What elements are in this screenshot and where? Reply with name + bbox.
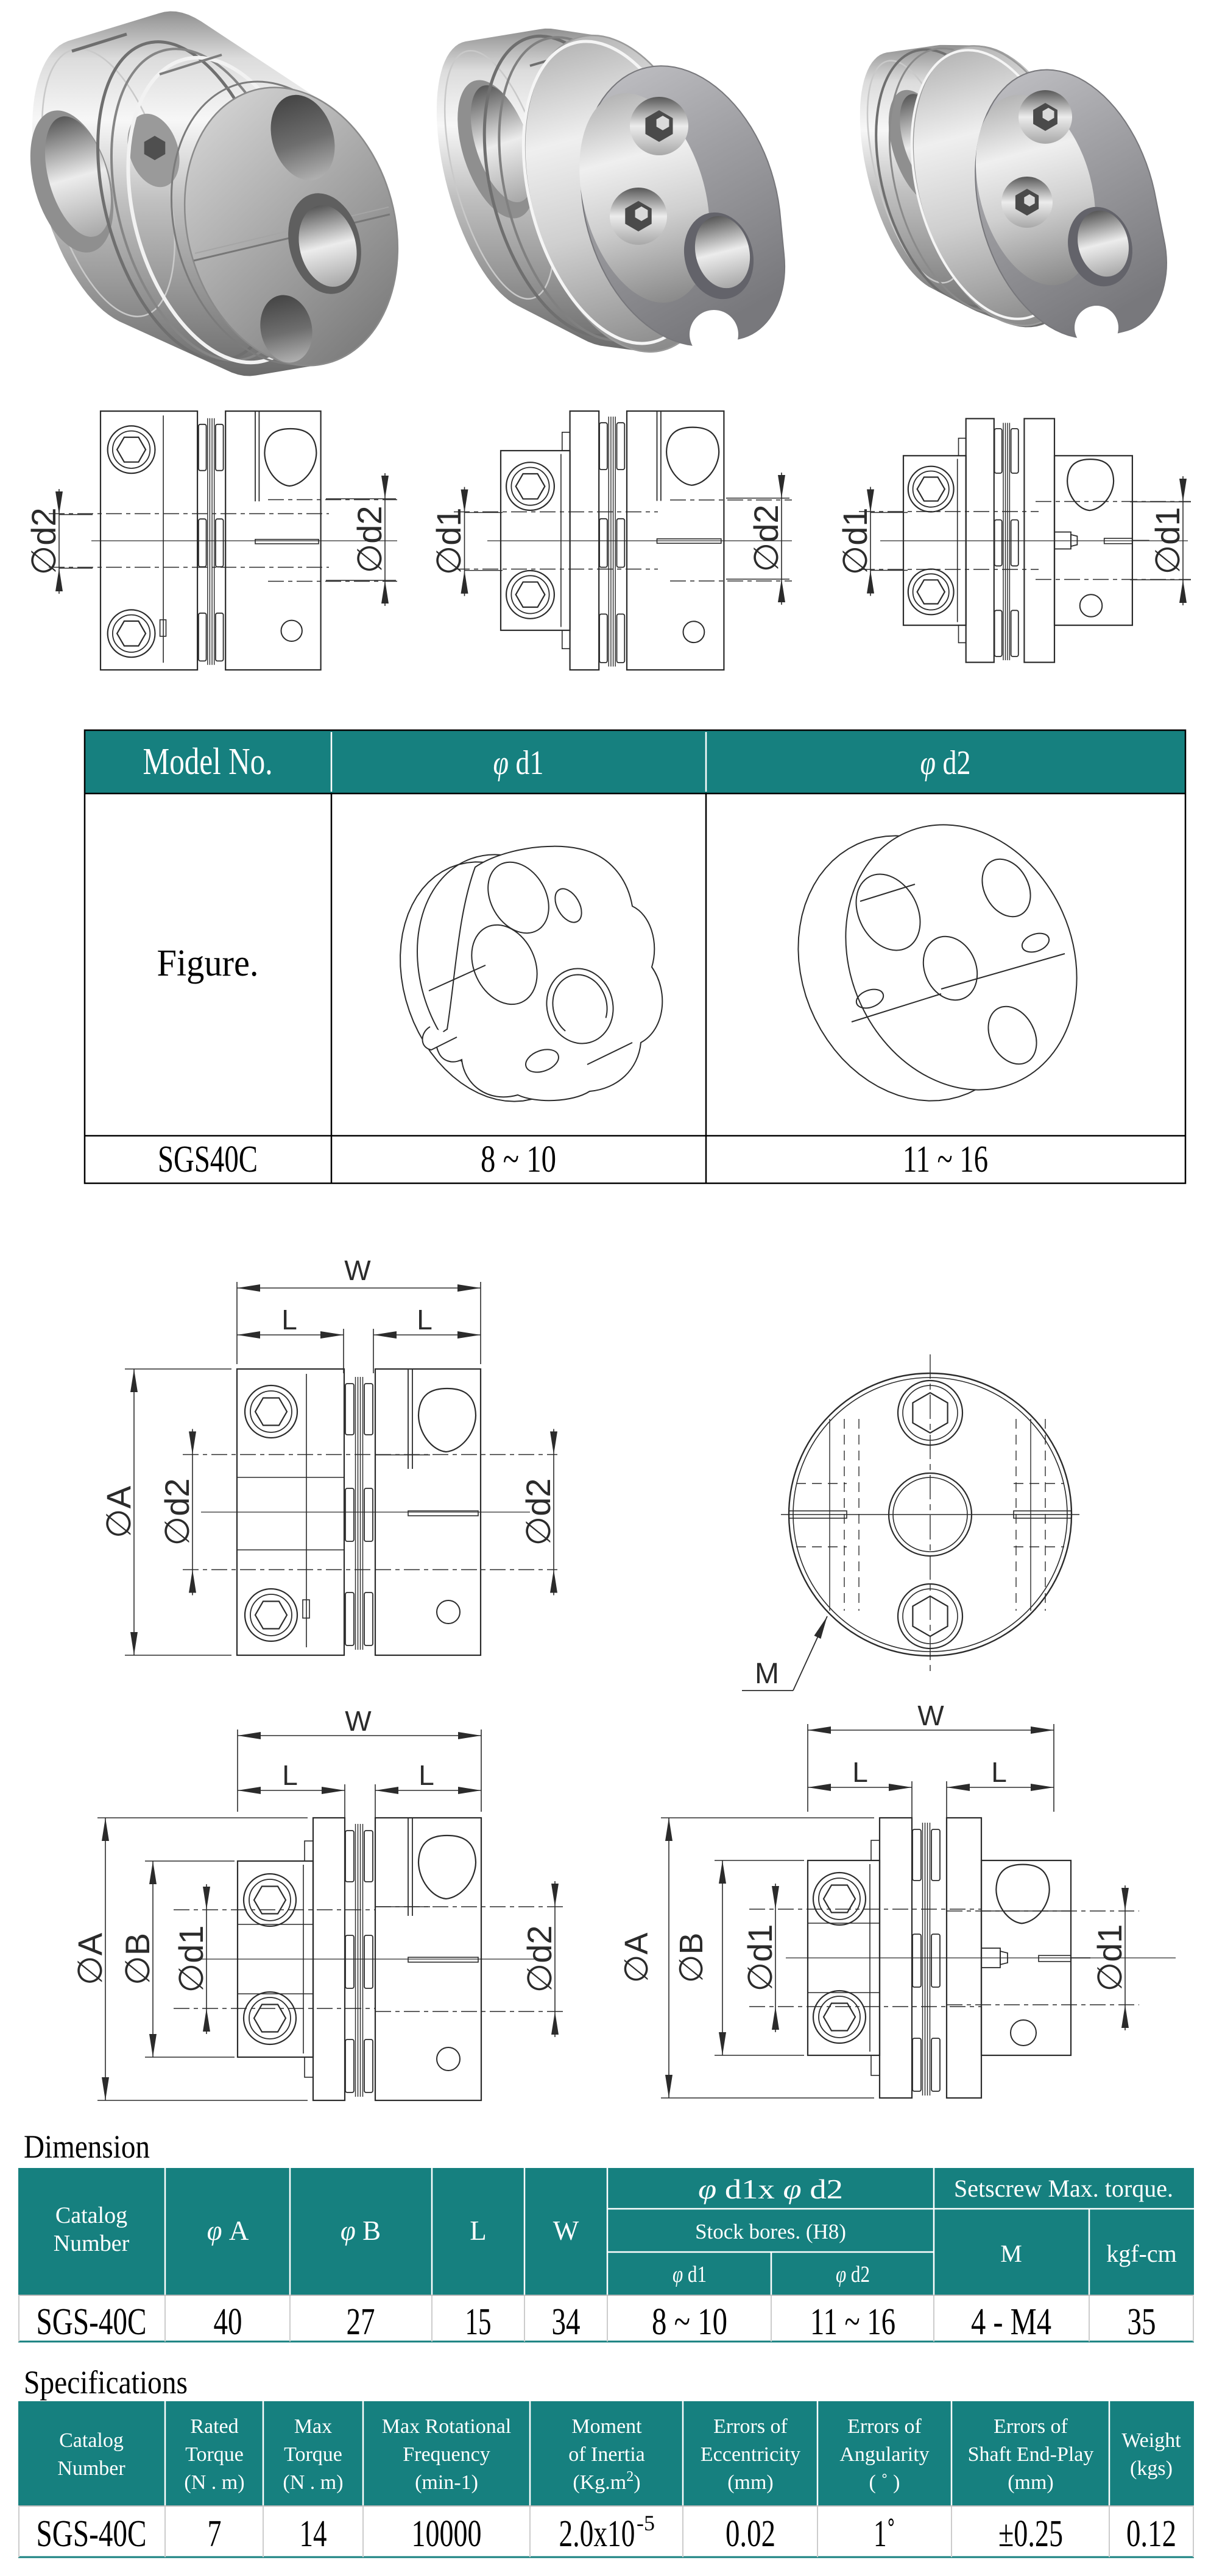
svg-text:∅B: ∅B [118,1933,157,1985]
svg-text:L: L [418,1759,434,1791]
svg-text:( ˚ ): ( ˚ ) [869,2471,900,2494]
svg-text:Weight: Weight [1121,2429,1181,2452]
svg-text:φ A: φ A [207,2215,249,2246]
svg-text:∅d1: ∅d1 [429,507,468,575]
svg-text:Stock bores. (H8): Stock bores. (H8) [695,2220,846,2243]
svg-text:10000: 10000 [412,2513,482,2555]
svg-text:W: W [917,1700,944,1731]
svg-text:Shaft End-Play: Shaft End-Play [968,2443,1094,2466]
svg-text:Rated: Rated [190,2415,238,2438]
svg-text:8 ~ 10: 8 ~ 10 [652,2301,727,2343]
svg-text:(kgs): (kgs) [1130,2457,1173,2480]
svg-text:±0.25: ±0.25 [998,2513,1063,2555]
svg-text:∅A: ∅A [618,1932,655,1983]
svg-text:Angularity: Angularity [839,2443,929,2466]
svg-text:M: M [1000,2240,1022,2267]
svg-text:∅A: ∅A [99,1485,138,1538]
svg-text:∅d2: ∅d2 [24,507,63,575]
svg-text:Errors of: Errors of [994,2415,1068,2438]
svg-text:0.02: 0.02 [726,2513,775,2555]
svg-text:Errors of: Errors of [847,2415,922,2438]
svg-text:φ d2: φ d2 [920,744,971,782]
svg-text:of Inertia: of Inertia [568,2443,645,2466]
svg-text:Catalog: Catalog [59,2429,124,2452]
svg-text:∅d1: ∅d1 [836,507,874,575]
svg-text:φ d1x φ d2: φ d1x φ d2 [698,2174,843,2205]
svg-text:∅d2: ∅d2 [158,1478,196,1546]
svg-text:W: W [553,2215,579,2246]
svg-text:Max Rotational: Max Rotational [382,2415,511,2438]
svg-text:∅d2: ∅d2 [520,1925,559,1993]
svg-text:(N . m): (N . m) [184,2471,244,2494]
svg-text:L: L [991,1756,1007,1788]
svg-text:φ d1: φ d1 [493,744,544,782]
svg-text:Torque: Torque [185,2443,244,2466]
svg-text:11 ~ 16: 11 ~ 16 [810,2301,895,2343]
svg-text:(mm): (mm) [1008,2471,1054,2494]
svg-text:M: M [755,1658,779,1690]
svg-text:0.12: 0.12 [1126,2513,1176,2555]
svg-text:(min-1): (min-1) [415,2471,478,2494]
svg-text:(mm): (mm) [727,2471,774,2494]
svg-text:W: W [344,1255,371,1286]
svg-text:8 ~ 10: 8 ~ 10 [481,1139,556,1180]
svg-text:L: L [282,1759,298,1791]
svg-text:Frequency: Frequency [403,2443,490,2466]
svg-text:Number: Number [57,2457,125,2480]
svg-text:2.0x10: 2.0x10 [559,2513,635,2555]
svg-text:SGS40C: SGS40C [158,1139,258,1180]
svg-text:Errors of: Errors of [713,2415,788,2438]
svg-text:35: 35 [1128,2301,1156,2343]
svg-text:1˚: 1˚ [874,2513,895,2555]
svg-text:Number: Number [54,2231,130,2256]
svg-text:W: W [345,1705,372,1737]
svg-text:L: L [470,2215,487,2246]
svg-text:∅d1: ∅d1 [1090,1924,1129,1991]
svg-text:Eccentricity: Eccentricity [701,2443,800,2466]
svg-text:(N . m): (N . m) [283,2471,343,2494]
svg-text:φ B: φ B [341,2215,381,2246]
svg-text:34: 34 [552,2301,581,2343]
svg-text:Setscrew Max. torque.: Setscrew Max. torque. [954,2175,1173,2202]
svg-text:∅d1: ∅d1 [1148,507,1187,574]
svg-text:Specifications: Specifications [24,2364,188,2401]
svg-text:Catalog: Catalog [55,2203,127,2228]
svg-text:∅d1: ∅d1 [741,1924,779,1991]
svg-text:40: 40 [214,2301,242,2343]
svg-text:∅d2: ∅d2 [350,505,389,573]
svg-text:Moment: Moment [571,2415,642,2438]
svg-text:Model No.: Model No. [143,741,273,783]
svg-text:SGS-40C: SGS-40C [37,2513,147,2555]
svg-text:15: 15 [465,2301,492,2343]
svg-text:φ d1: φ d1 [673,2262,707,2287]
svg-text:4 - M4: 4 - M4 [971,2301,1051,2343]
svg-text:∅A: ∅A [71,1932,109,1985]
svg-text:Dimension: Dimension [24,2128,150,2165]
svg-text:∅B: ∅B [673,1932,710,1983]
svg-text:L: L [281,1304,297,1336]
svg-text:27: 27 [347,2301,375,2343]
svg-text:-5: -5 [637,2511,655,2535]
svg-text:∅d2: ∅d2 [519,1478,557,1546]
svg-text:∅d2: ∅d2 [747,504,785,572]
svg-text:L: L [417,1304,432,1336]
svg-text:φ d2: φ d2 [836,2262,870,2287]
svg-text:kgf-cm: kgf-cm [1106,2240,1177,2267]
svg-text:7: 7 [208,2513,222,2555]
svg-text:SGS-40C: SGS-40C [37,2301,147,2343]
svg-text:Max: Max [294,2415,332,2438]
svg-text:L: L [852,1756,868,1788]
svg-text:11 ~ 16: 11 ~ 16 [903,1139,988,1180]
svg-text:Figure.: Figure. [157,943,259,984]
svg-text:∅d1: ∅d1 [172,1925,210,1993]
svg-text:14: 14 [300,2513,327,2555]
svg-text:Torque: Torque [284,2443,342,2466]
